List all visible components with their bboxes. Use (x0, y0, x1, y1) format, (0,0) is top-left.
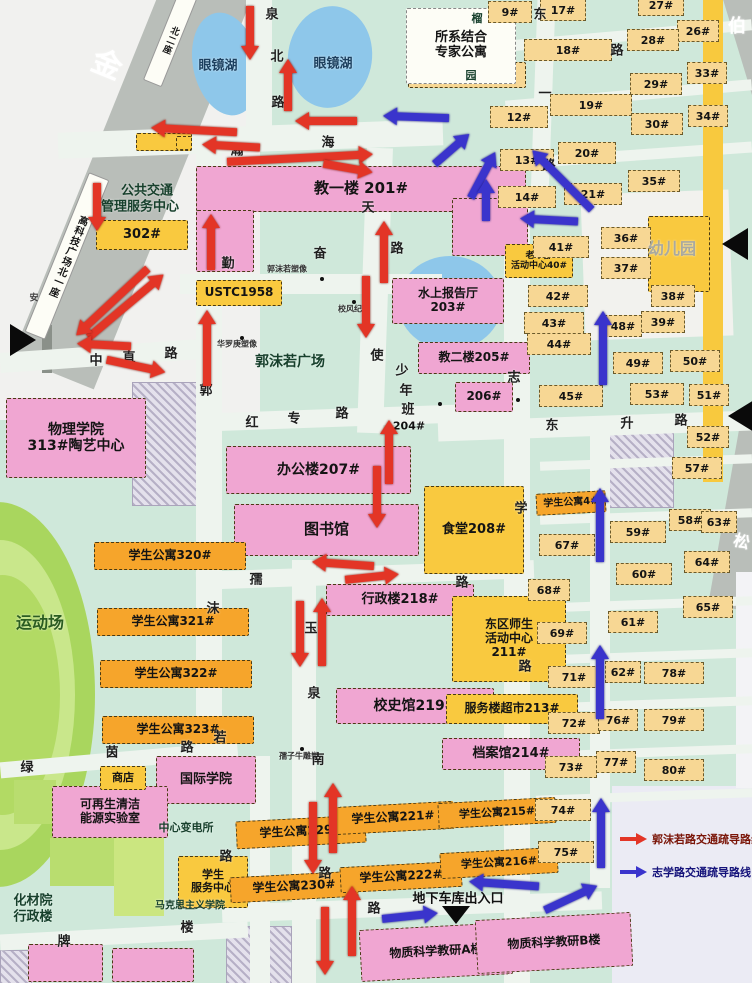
map-label-20: 榴 (472, 10, 483, 26)
road-char-0: 泉 (265, 4, 278, 23)
arrow-head (198, 310, 216, 324)
dorm-67: 67# (539, 534, 595, 556)
arrow-shaft (164, 124, 237, 136)
map-label-16: 中心变电所 (159, 819, 214, 835)
arrow-head (151, 119, 166, 138)
dorm-9: 9# (488, 1, 532, 23)
building-11: 物理学院313#陶艺中心 (6, 398, 146, 478)
building-16 (28, 944, 103, 982)
dorm-44: 44# (527, 333, 591, 355)
road-char-12: 若 (213, 727, 226, 746)
road-char-32: 路 (674, 410, 687, 429)
dorm-34: 34# (688, 105, 728, 127)
arrow-blue-26 (383, 107, 450, 127)
blue-route-arrow-icon (620, 865, 647, 879)
road-char-11: 沫 (206, 598, 219, 617)
map-label-14: 行政楼 (13, 906, 52, 925)
map-label-18: 运动场 (16, 609, 64, 633)
gate-marker-1 (722, 228, 748, 260)
arrow-head (380, 420, 398, 434)
arrow-blue-29 (477, 179, 495, 221)
arrow-shaft (321, 907, 329, 962)
arrow-head (591, 645, 609, 659)
arrow-blue-34 (591, 645, 609, 719)
dorm-28: 28# (627, 29, 679, 51)
map-label-15: 马克思主义学院 (155, 897, 225, 912)
arrow-head (88, 217, 106, 231)
building-33: 学生公寓322# (100, 660, 252, 688)
map-label-10: 华罗庚塑像 (217, 339, 257, 350)
dorm-33: 33# (687, 62, 727, 84)
arrow-red-22 (324, 783, 342, 853)
road-char-13: 路 (180, 737, 193, 756)
building-15: 物质科学教研B楼 (475, 912, 634, 974)
dorm-77: 77# (596, 751, 636, 773)
arrow-red-2 (295, 112, 357, 130)
dorm-62: 62# (605, 661, 641, 683)
road-char-44: 路 (219, 846, 232, 865)
statue-dot-0 (320, 277, 324, 281)
building-31: 学生公寓320# (94, 542, 246, 570)
dorm-78: 78# (644, 662, 704, 684)
arrow-red-15 (357, 276, 375, 338)
dorm-57: 57# (672, 457, 722, 479)
zone-court-a (14, 780, 56, 824)
dorm-38: 38# (651, 285, 695, 307)
road-char-36: 路 (610, 40, 623, 59)
road-char-34: 一 (538, 83, 551, 102)
dorm-43: 43# (524, 312, 584, 334)
road-char-31: 升 (620, 413, 633, 432)
dorm-19: 19# (550, 94, 632, 116)
dorm-42: 42# (528, 285, 588, 307)
building-22: 食堂208# (424, 486, 524, 574)
dorm-52: 52# (687, 426, 729, 448)
statue-dot-2 (240, 336, 244, 340)
dorm-39: 39# (641, 311, 685, 333)
arrow-head (468, 873, 483, 892)
road-char-28: 学 (514, 498, 527, 517)
arrow-head (304, 860, 322, 874)
dorm-12: 12# (490, 106, 548, 128)
dorm-68: 68# (528, 579, 570, 601)
building-28: 商店 (100, 766, 146, 790)
arrow-red-24 (343, 886, 361, 956)
map-label-4: 眼镜湖 (313, 53, 352, 72)
arrow-shaft (203, 323, 211, 386)
dorm-17: 17# (540, 0, 586, 21)
dorm-51: 51# (689, 384, 729, 406)
map-label-8: 郭沫若塑像 (267, 264, 307, 275)
dorm-69: 69# (537, 622, 587, 644)
arrow-shaft (309, 802, 317, 861)
gate-marker-2 (728, 400, 752, 432)
arrow-head (77, 335, 92, 354)
arrow-shaft (382, 910, 426, 922)
dorm-49: 49# (613, 352, 663, 374)
road-char-9: 奋 (313, 243, 326, 262)
dorm-30: 30# (631, 113, 683, 135)
building-13: 可再生清洁能源实验室 (52, 786, 168, 838)
dorm-73: 73# (545, 756, 597, 778)
arrow-shaft (362, 276, 370, 325)
arrow-head (368, 514, 386, 528)
arrow-shaft (396, 112, 449, 122)
map-label-22: 安 (29, 291, 38, 304)
arrow-shaft (207, 227, 215, 270)
arrow-head (357, 324, 375, 338)
legend-label-red: 郭沫若路交通疏导路线 (652, 831, 752, 847)
dorm-75: 75# (538, 841, 594, 863)
arrow-red-1 (279, 59, 297, 111)
road-char-21: 路 (335, 403, 348, 422)
road-char-7: 使 (370, 345, 383, 364)
dorm-37: 37# (601, 257, 651, 279)
dorm-35: 35# (628, 170, 680, 192)
map-label-3: 眼镜湖 (198, 55, 237, 74)
road-char-5: 天 (361, 197, 374, 216)
arrow-head (202, 214, 220, 228)
arrow-shaft (308, 117, 357, 125)
arrow-head (477, 179, 495, 193)
legend-label-blue: 志学路交通疏导路线 (652, 864, 751, 880)
arrow-shaft (380, 234, 388, 283)
dorm-27: 27# (638, 0, 684, 16)
building-3: 水上报告厅203# (392, 278, 504, 324)
gate-marker-0 (10, 324, 36, 356)
arrow-shaft (323, 160, 361, 174)
building-12: 国际学院 (156, 756, 256, 804)
arrow-red-10 (77, 335, 132, 356)
map-label-7: 郭沫若广场 (255, 351, 325, 371)
dorm-45: 45# (539, 385, 603, 407)
dorm-50: 50# (670, 350, 720, 372)
dorm-64: 64# (684, 551, 730, 573)
building-32: 学生公寓321# (97, 608, 249, 636)
arrow-head (324, 783, 342, 797)
arrow-shaft (373, 466, 381, 515)
dorm-61: 61# (608, 611, 658, 633)
arrow-red-14 (375, 221, 393, 283)
arrow-shaft (329, 796, 337, 853)
building-37: 学生公寓221# (331, 801, 454, 835)
dorm-80: 80# (644, 759, 704, 781)
arrow-red-21 (313, 598, 331, 666)
dorm-41: 41# (533, 236, 589, 258)
gate-marker-3 (442, 906, 470, 924)
building-34: 学生公寓323# (102, 716, 254, 744)
arrow-shaft (90, 340, 131, 350)
arrow-blue-36 (541, 878, 601, 919)
legend-item-guomoruo-route: 郭沫若路交通疏导路线 (620, 831, 752, 847)
road-char-30: 东 (545, 415, 558, 434)
zone-court-b (50, 838, 114, 886)
arrow-head (520, 209, 535, 228)
arrow-blue-31 (520, 209, 579, 230)
arrow-head (423, 904, 439, 923)
dorm-79: 79# (644, 709, 704, 731)
arrow-red-0 (241, 6, 259, 60)
red-route-arrow-icon (620, 832, 647, 846)
arrow-head (316, 961, 334, 975)
arrow-red-25 (316, 907, 334, 975)
arrow-shaft (318, 611, 326, 666)
building-18: 302# (96, 220, 188, 250)
road-char-42: 牌 (57, 931, 70, 950)
arrow-head (592, 798, 610, 812)
arrow-red-13 (202, 214, 220, 270)
road-char-15: 绿 (20, 757, 33, 776)
road-char-20: 专 (287, 408, 300, 427)
arrow-head (311, 553, 326, 572)
zone-legend-bg (612, 786, 752, 983)
arrow-shaft (348, 899, 356, 956)
legend-item-zhixue-route: 志学路交通疏导路线 (620, 864, 751, 880)
arrow-shaft (482, 878, 539, 890)
map-label-12: 幼儿园 (648, 235, 696, 259)
arrow-blue-35 (592, 798, 610, 868)
road-char-18: 路 (164, 343, 177, 362)
arrow-head (279, 59, 297, 73)
building-21: USTC1958 (196, 280, 282, 306)
road-char-27: 志 (507, 367, 520, 386)
arrow-head (291, 653, 309, 667)
dorm-29: 29# (630, 73, 682, 95)
arrow-shaft (533, 215, 578, 225)
arrow-head (375, 221, 393, 235)
dorm-60: 60# (616, 563, 672, 585)
road-char-40: 年 (399, 380, 412, 399)
dorm-20: 20# (558, 142, 616, 164)
arrow-shaft (93, 183, 101, 218)
building-5: 206# (455, 382, 513, 412)
road-char-29: 路 (518, 656, 531, 675)
arrow-head (591, 488, 609, 502)
arrow-shaft (599, 324, 607, 385)
arrow-red-23 (304, 802, 322, 874)
arrow-blue-33 (591, 488, 609, 562)
map-label-6: 管理服务中心 (101, 196, 179, 215)
arrow-shaft (596, 658, 604, 719)
dorm-14: 14# (498, 186, 556, 208)
arrow-head (383, 107, 398, 125)
dorm-18: 18# (524, 39, 612, 61)
road-char-14: 茵 (105, 742, 118, 761)
arrow-shaft (246, 6, 254, 47)
map-label-1: 伯 (728, 12, 746, 38)
arrow-shaft (385, 433, 393, 484)
road-char-19: 红 (245, 412, 258, 431)
arrow-head (594, 311, 612, 325)
arrow-shaft (296, 601, 304, 654)
arrow-shaft (215, 141, 260, 151)
dorm-36: 36# (601, 227, 651, 249)
dorm-65: 65# (683, 596, 733, 618)
dorm-74: 74# (535, 799, 591, 821)
arrow-head (241, 46, 259, 60)
map-label-21: 园 (466, 67, 477, 83)
arrow-shaft (345, 572, 387, 584)
building-17 (112, 948, 194, 982)
road-char-26: 路 (367, 898, 380, 917)
road-char-24: 南 (311, 749, 324, 768)
road-char-23: 泉 (307, 683, 320, 702)
road-char-8: 勤 (221, 253, 234, 272)
building-7: 图书馆 (234, 504, 419, 556)
arrow-head (313, 598, 331, 612)
dorm-59: 59# (610, 521, 666, 543)
road-char-33: 东 (533, 4, 546, 23)
arrow-shaft (596, 501, 604, 562)
statue-dot-5 (516, 398, 520, 402)
arrow-blue-32 (594, 311, 612, 385)
arrow-shaft (482, 192, 490, 221)
road-char-38: 路 (455, 572, 468, 591)
statue-dot-1 (352, 300, 356, 304)
arrow-head (384, 565, 400, 584)
road-char-37: 孺 (249, 569, 262, 588)
dorm-63: 63# (701, 511, 737, 533)
road-char-39: 少 (395, 360, 408, 379)
dorm-53: 53# (630, 383, 684, 405)
arrow-red-12 (198, 310, 216, 386)
statue-dot-4 (438, 402, 442, 406)
arrow-shaft (284, 72, 292, 111)
road-char-43: 楼 (180, 917, 193, 936)
arrow-red-7 (88, 183, 106, 231)
arrow-head (295, 112, 309, 130)
arrow-red-17 (368, 466, 386, 528)
arrow-shaft (597, 811, 605, 868)
dorm-26: 26# (677, 20, 719, 42)
road-char-41: 班 (401, 399, 414, 418)
arrow-head (343, 886, 361, 900)
arrow-red-20 (291, 601, 309, 667)
statue-dot-3 (300, 747, 304, 751)
campus-map: 郭沫若路交通疏导路线 志学路交通疏导路线 教一楼 201#水上报告厅203#教二… (0, 0, 752, 983)
